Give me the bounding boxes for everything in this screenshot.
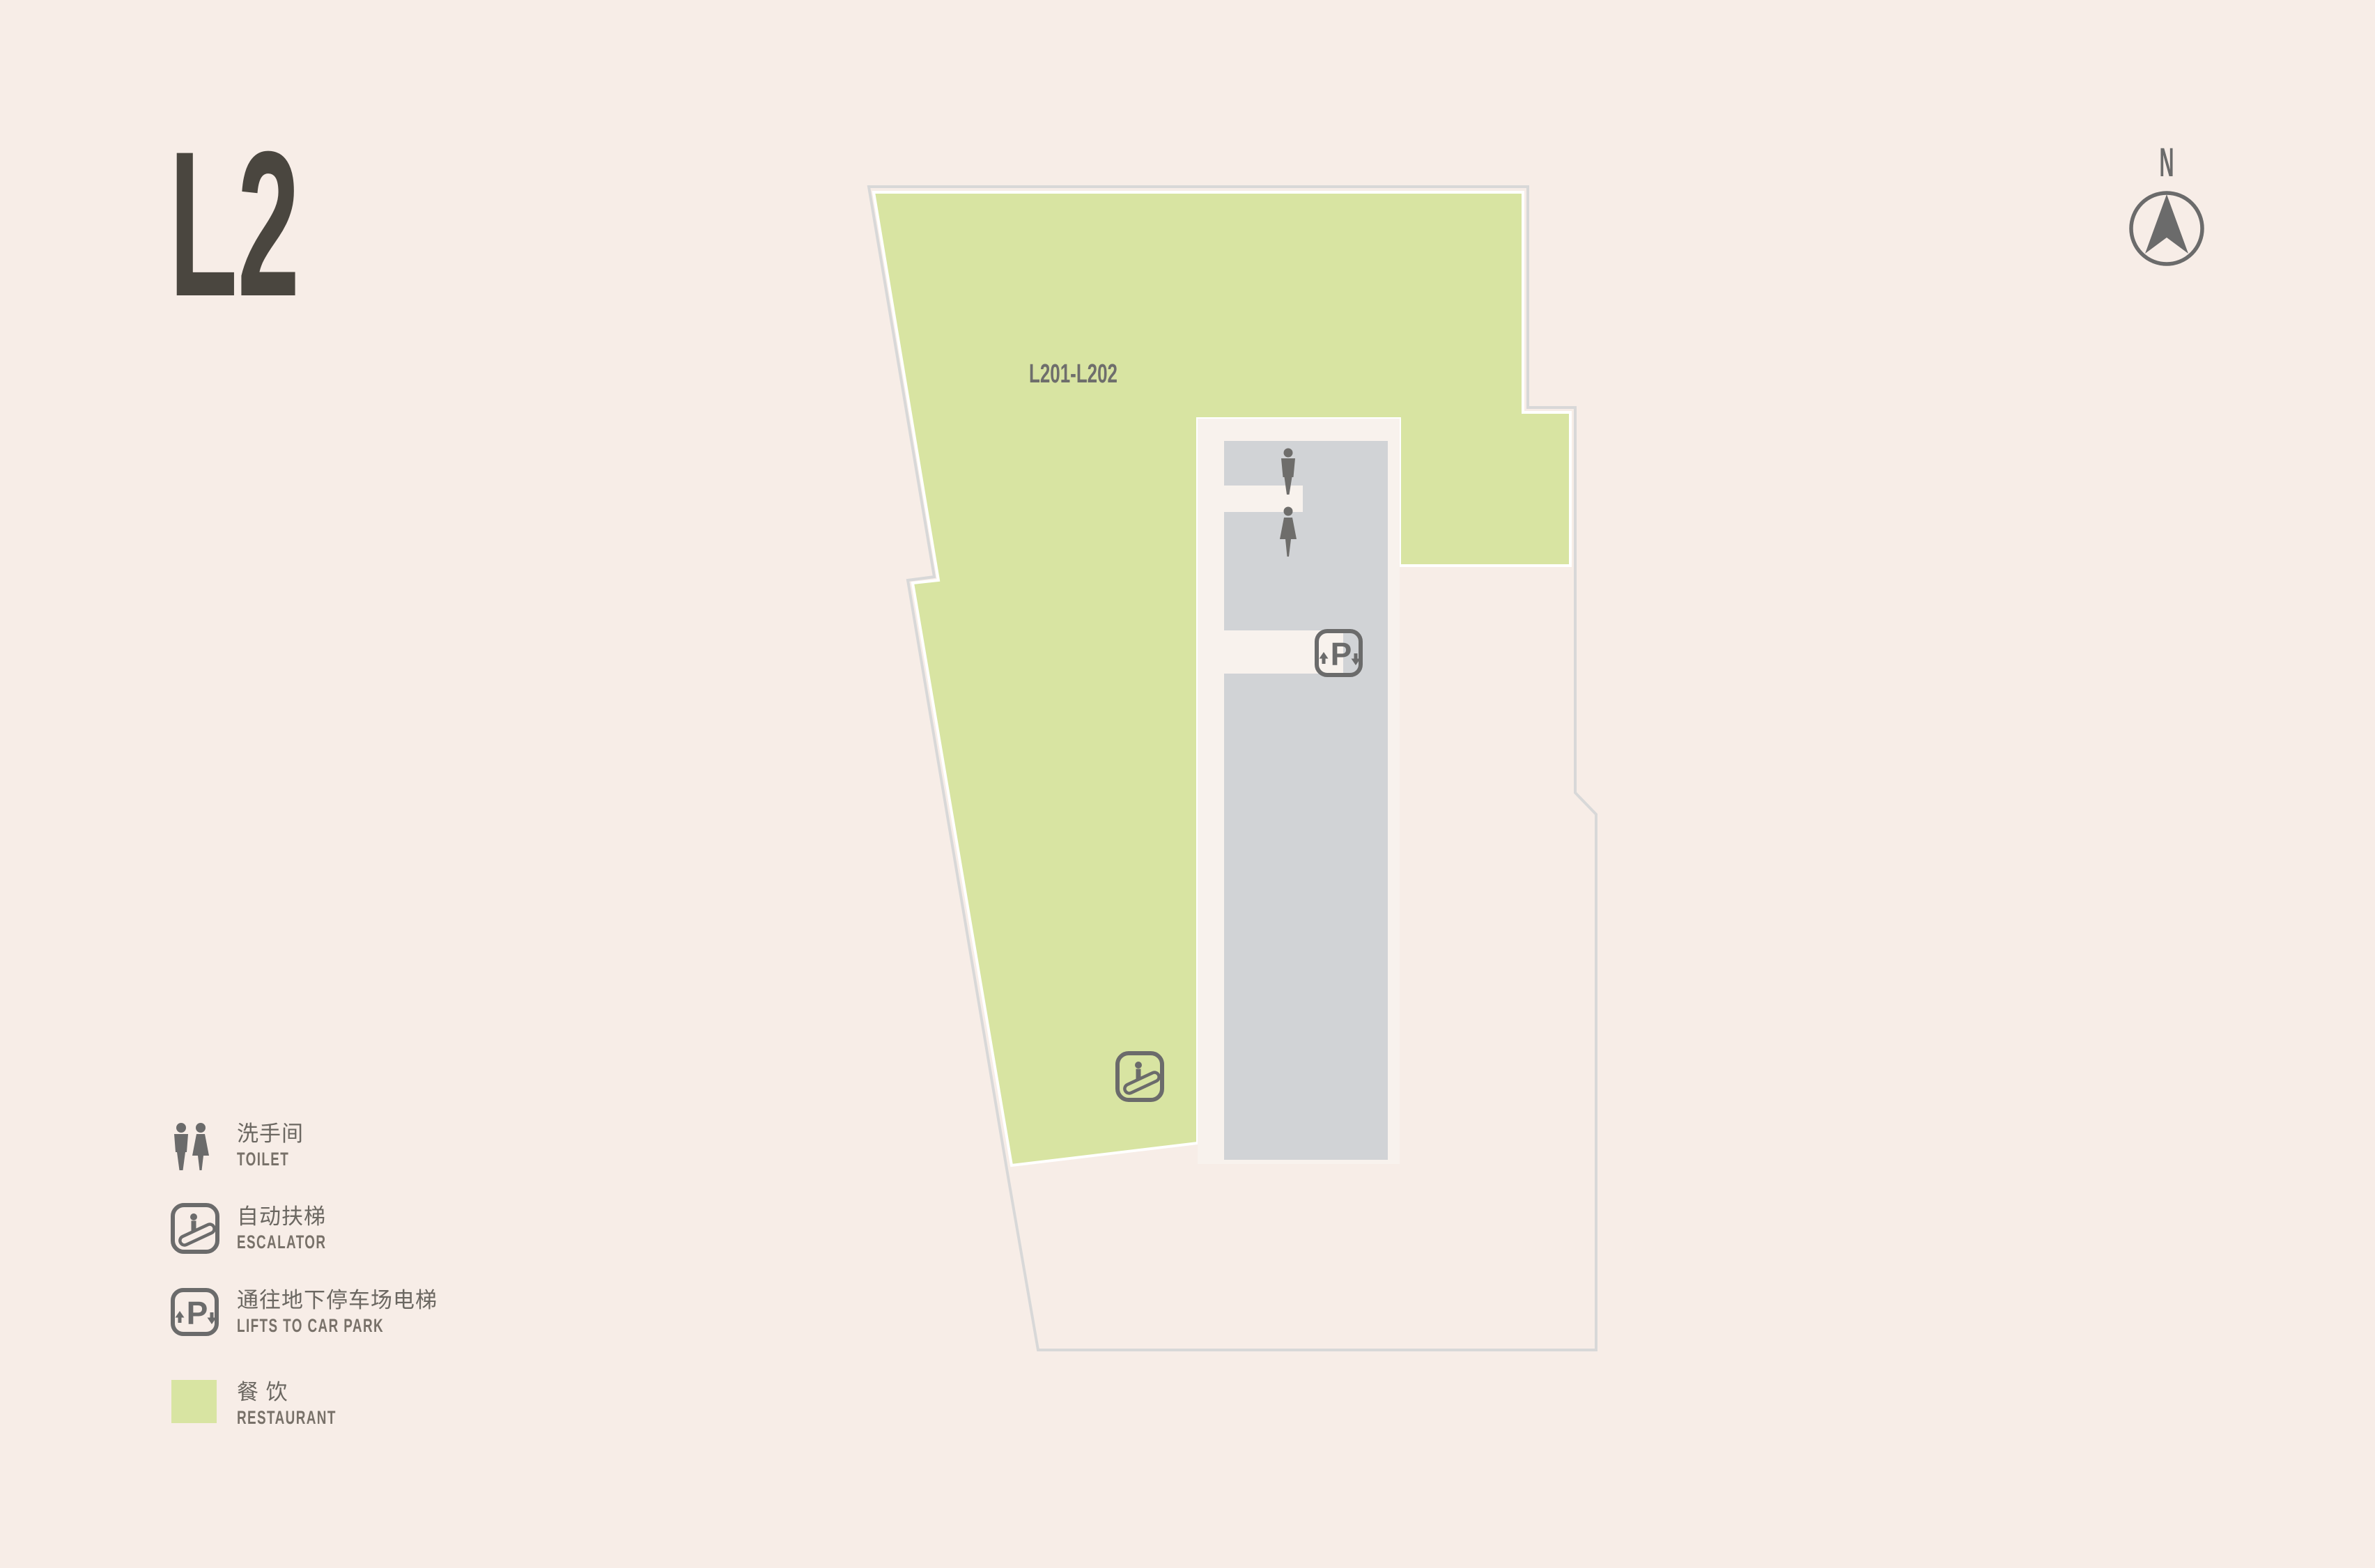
svg-text:P: P — [1331, 636, 1352, 672]
floor-title: L2 — [169, 108, 300, 339]
legend-item-escalator: 自动扶梯 ESCALATOR — [171, 1202, 658, 1265]
svg-text:P: P — [187, 1295, 208, 1331]
legend-label-zh: 洗手间 — [237, 1121, 304, 1147]
floor-map-page: L2 L201-L202 P — [0, 0, 2375, 1568]
core-block-upper — [1224, 441, 1388, 630]
legend-item-restaurant: 餐 饮 RESTAURANT — [171, 1378, 658, 1441]
legend-label-en: TOILET — [237, 1150, 289, 1169]
escalator-icon — [171, 1203, 219, 1254]
legend-label-zh: 自动扶梯 — [237, 1204, 326, 1230]
legend-label-en: ESCALATOR — [237, 1233, 326, 1252]
legend-item-car-park-lifts: P 通往地下停车场电梯 LIFTS TO CAR PARK — [171, 1286, 658, 1349]
car-park-lift-icon: P — [171, 1288, 219, 1336]
toilet-figures-icon — [173, 1122, 210, 1171]
restaurant-swatch — [171, 1380, 217, 1423]
compass-north-label: N — [2160, 140, 2174, 185]
unit-label: L201-L202 — [1029, 359, 1117, 389]
legend-label-en: RESTAURANT — [237, 1408, 336, 1427]
legend-item-toilet: 洗手间 TOILET — [171, 1120, 658, 1183]
compass-arrow-icon — [2145, 194, 2188, 254]
legend-label-zh: 通往地下停车场电梯 — [237, 1287, 438, 1314]
core-block-lower — [1224, 674, 1388, 1160]
legend-label-zh: 餐 饮 — [237, 1379, 288, 1406]
legend-label-en: LIFTS TO CAR PARK — [237, 1317, 384, 1335]
north-compass: N — [2131, 140, 2202, 264]
